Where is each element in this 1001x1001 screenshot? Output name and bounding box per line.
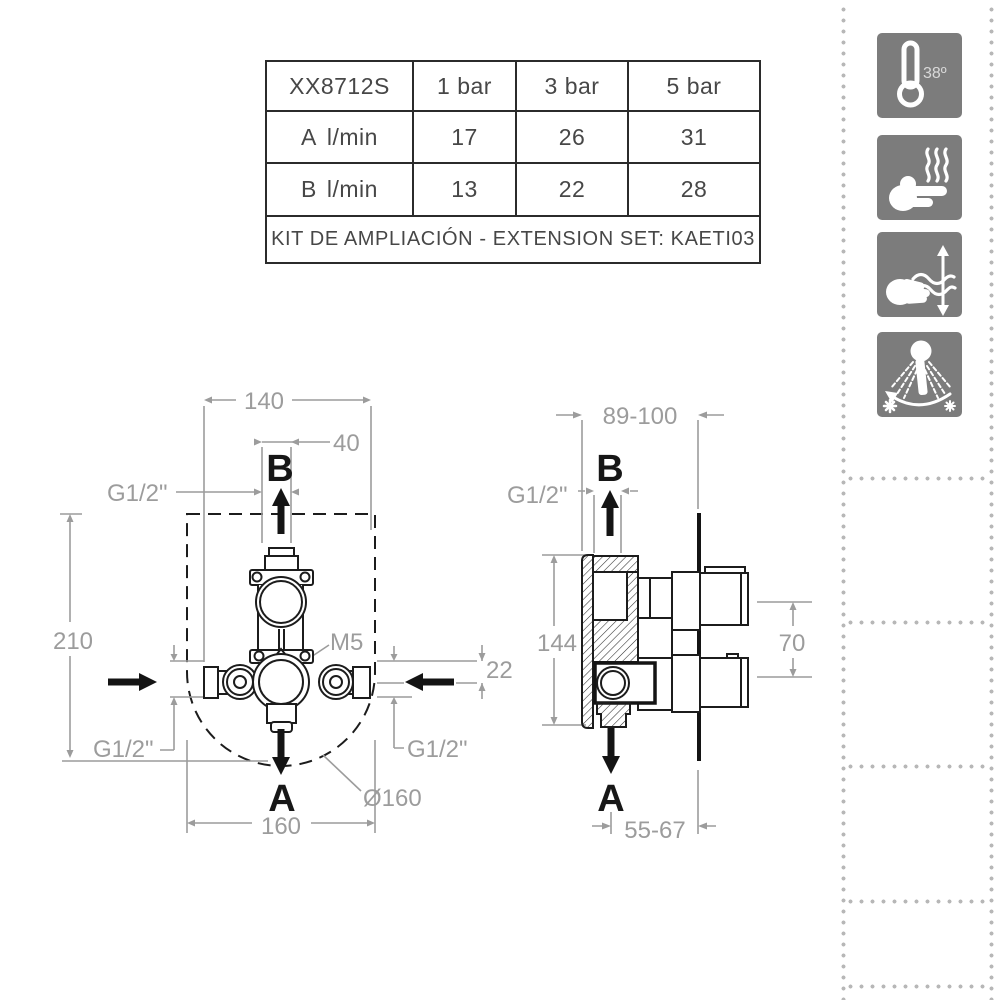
dim-55-67-label: 55-67 [624, 817, 685, 844]
flow-rate-table: XX8712S 1 bar 3 bar 5 bar A l/min 17 26 … [265, 60, 761, 264]
side-thread-label: G1/2" [507, 482, 568, 509]
table-header-3bar: 3 bar [515, 62, 627, 110]
hand-flow-icon [877, 232, 962, 317]
dim-22-label: 22 [486, 657, 513, 684]
table-row-b-label: B l/min [267, 162, 412, 215]
table-cell: 22 [515, 162, 627, 215]
screw-m5-label: M5 [330, 629, 363, 656]
table-row-a-label: A l/min [267, 110, 412, 162]
thermometer-icon: 38º [877, 33, 962, 118]
table-model-cell: XX8712S [267, 62, 412, 110]
row-a-letter: A [301, 124, 317, 151]
thermostat-temp-label: 38º [923, 65, 947, 82]
table-cell: 28 [627, 162, 759, 215]
outlet-b-letter-side: B [596, 448, 623, 490]
dotted-separator-row-4 [845, 899, 991, 904]
dotted-separator-vertical-inner [841, 4, 846, 1000]
dotted-separator-row-5 [845, 984, 991, 989]
dotted-separator-row-1 [845, 476, 991, 481]
flow-control-icon [877, 232, 962, 317]
dim-40-label: 40 [333, 430, 360, 457]
dotted-separator-row-2 [845, 620, 991, 625]
dim-210-label: 210 [53, 628, 93, 655]
diameter-leader [323, 755, 361, 791]
dim-140-label: 140 [244, 388, 284, 415]
thread-top-label: G1/2" [107, 480, 168, 507]
outlet-a-letter-front: A [268, 778, 295, 820]
hand-heat-icon [877, 135, 962, 220]
shower-spray-icon [877, 332, 962, 417]
row-a-unit: l/min [327, 124, 378, 151]
dotted-separator-row-3 [845, 764, 991, 769]
table-cell: 17 [412, 110, 515, 162]
extension-kit-note: KIT DE AMPLIACIÓN - EXTENSION SET: KAETI… [267, 215, 759, 262]
dim-89-100-label: 89-100 [603, 403, 678, 430]
thread-bottom-left-label: G1/2" [93, 736, 154, 763]
datasheet-page: 140 40 G1/2" 210 M5 [0, 0, 1001, 1001]
spray-range-icon [877, 332, 962, 417]
dim-144-label: 144 [537, 630, 577, 657]
left-port-ticks [160, 645, 204, 750]
thermostatic-38-icon: 38º [877, 33, 962, 118]
dim-diameter-label: Ø160 [363, 785, 422, 812]
temperature-control-icon [877, 135, 962, 220]
table-cell: 31 [627, 110, 759, 162]
table-cell: 13 [412, 162, 515, 215]
outlet-a-letter-side: A [597, 778, 624, 820]
table-header-1bar: 1 bar [412, 62, 515, 110]
dimension-22 [377, 645, 486, 748]
row-b-letter: B [301, 176, 317, 203]
table-header-5bar: 5 bar [627, 62, 759, 110]
row-b-unit: l/min [327, 176, 378, 203]
table-cell: 26 [515, 110, 627, 162]
thread-bottom-right-label: G1/2" [407, 736, 468, 763]
front-view-drawing: 140 40 G1/2" 210 M5 [53, 388, 513, 840]
dim-70-label: 70 [779, 630, 806, 657]
dotted-separator-vertical-outer [989, 4, 994, 1000]
side-view-drawing: 89-100 G1/2" 144 70 [507, 403, 812, 844]
valve-body-side [582, 513, 748, 761]
outlet-b-letter-front: B [266, 448, 293, 490]
